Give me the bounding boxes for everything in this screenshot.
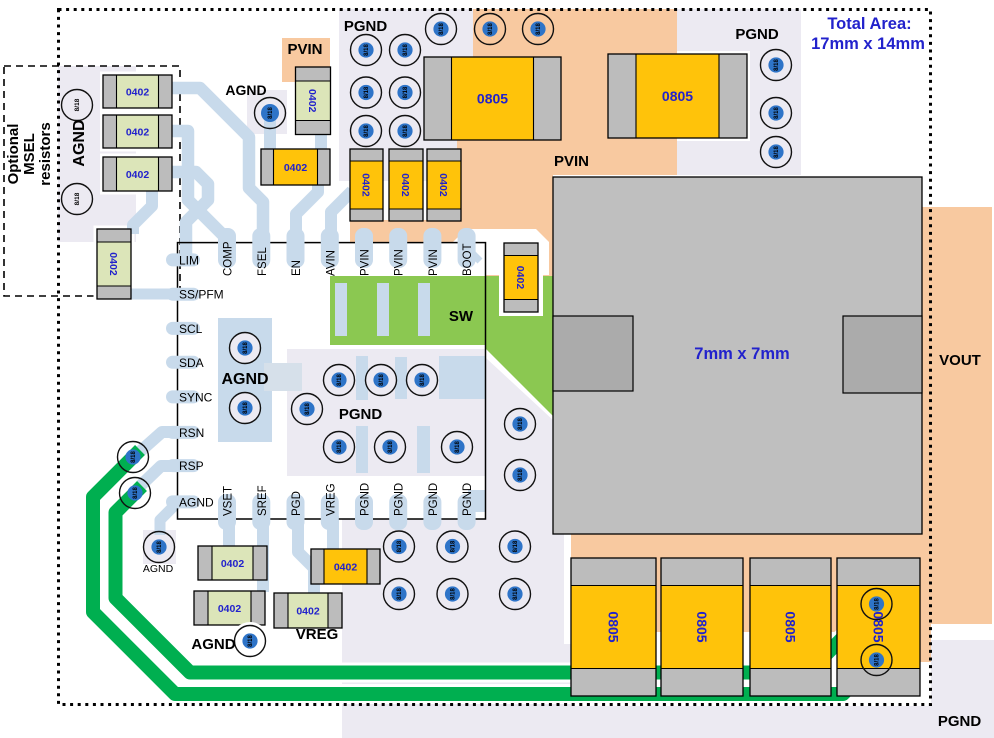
svg-text:8/18: 8/18 xyxy=(268,107,274,119)
svg-text:PVIN: PVIN xyxy=(287,41,322,58)
svg-text:8/18: 8/18 xyxy=(513,588,519,600)
svg-text:0402: 0402 xyxy=(126,86,150,98)
svg-text:0402: 0402 xyxy=(296,605,320,617)
svg-text:7mm x 7mm: 7mm x 7mm xyxy=(694,345,789,363)
svg-text:VREG: VREG xyxy=(325,483,337,516)
svg-text:8/18: 8/18 xyxy=(243,402,249,414)
svg-text:0805: 0805 xyxy=(477,91,508,107)
svg-text:SS/PFM: SS/PFM xyxy=(179,288,224,302)
svg-text:8/18: 8/18 xyxy=(513,540,519,552)
svg-text:8/18: 8/18 xyxy=(337,441,343,453)
svg-text:8/18: 8/18 xyxy=(379,374,385,386)
svg-text:AGND: AGND xyxy=(191,636,235,653)
svg-text:8/18: 8/18 xyxy=(518,469,524,481)
svg-text:0402: 0402 xyxy=(334,561,358,573)
svg-text:8/18: 8/18 xyxy=(455,441,461,453)
svg-text:PGND: PGND xyxy=(344,18,388,35)
svg-text:17mm x 14mm: 17mm x 14mm xyxy=(811,35,925,53)
svg-text:PVIN: PVIN xyxy=(394,249,406,276)
svg-text:8/18: 8/18 xyxy=(403,44,409,56)
svg-text:0402: 0402 xyxy=(399,173,411,197)
svg-text:PGND: PGND xyxy=(428,483,440,516)
svg-text:8/18: 8/18 xyxy=(305,403,311,415)
svg-text:8/18: 8/18 xyxy=(451,588,457,600)
svg-text:PGND: PGND xyxy=(462,483,474,516)
svg-text:0402: 0402 xyxy=(218,603,242,615)
svg-text:SW: SW xyxy=(449,308,474,325)
svg-text:8/18: 8/18 xyxy=(774,146,780,158)
svg-text:SREF: SREF xyxy=(257,485,269,516)
svg-text:8/18: 8/18 xyxy=(337,374,343,386)
svg-text:8/18: 8/18 xyxy=(388,441,394,453)
svg-text:MSEL: MSEL xyxy=(21,133,38,175)
svg-text:8/18: 8/18 xyxy=(133,487,139,499)
svg-text:VREG: VREG xyxy=(296,626,339,643)
svg-text:PVIN: PVIN xyxy=(554,153,589,170)
svg-text:0402: 0402 xyxy=(221,558,245,570)
svg-text:EN: EN xyxy=(291,260,303,276)
svg-text:8/18: 8/18 xyxy=(364,44,370,56)
svg-text:PGD: PGD xyxy=(291,491,303,516)
svg-text:PGND: PGND xyxy=(735,26,779,43)
svg-text:0402: 0402 xyxy=(437,173,449,197)
svg-text:0402: 0402 xyxy=(284,162,308,174)
svg-text:8/18: 8/18 xyxy=(875,598,881,610)
svg-text:8/18: 8/18 xyxy=(488,23,494,35)
svg-text:8/18: 8/18 xyxy=(397,540,403,552)
svg-text:PGND: PGND xyxy=(339,406,383,423)
svg-text:8/18: 8/18 xyxy=(439,23,445,35)
svg-text:FSEL: FSEL xyxy=(257,247,269,276)
svg-text:8/18: 8/18 xyxy=(157,541,163,553)
svg-text:0805: 0805 xyxy=(782,611,798,642)
svg-text:LIM: LIM xyxy=(179,253,199,267)
svg-text:8/18: 8/18 xyxy=(403,125,409,137)
svg-text:8/18: 8/18 xyxy=(131,451,137,463)
svg-text:8/18: 8/18 xyxy=(875,654,881,666)
svg-text:8/18: 8/18 xyxy=(536,23,542,35)
svg-text:0402: 0402 xyxy=(126,169,150,181)
svg-text:0805: 0805 xyxy=(870,611,886,642)
svg-text:PGND: PGND xyxy=(360,483,372,516)
svg-text:8/18: 8/18 xyxy=(403,86,409,98)
svg-text:8/18: 8/18 xyxy=(364,86,370,98)
svg-text:0805: 0805 xyxy=(694,611,710,642)
svg-text:resistors: resistors xyxy=(37,122,54,185)
svg-text:AGND: AGND xyxy=(225,82,266,98)
svg-text:8/18: 8/18 xyxy=(774,107,780,119)
svg-text:0402: 0402 xyxy=(360,173,372,197)
svg-text:BOOT: BOOT xyxy=(462,243,474,276)
svg-text:0805: 0805 xyxy=(662,88,693,104)
svg-text:AGND: AGND xyxy=(143,563,174,575)
svg-text:PGND: PGND xyxy=(394,483,406,516)
svg-text:COMP: COMP xyxy=(223,241,235,276)
svg-text:RSP: RSP xyxy=(179,459,204,473)
svg-text:8/18: 8/18 xyxy=(74,98,81,111)
svg-text:8/18: 8/18 xyxy=(248,635,254,647)
svg-text:AGND: AGND xyxy=(221,371,268,388)
svg-text:0402: 0402 xyxy=(514,266,526,290)
svg-text:8/18: 8/18 xyxy=(451,540,457,552)
svg-text:PGND: PGND xyxy=(938,713,982,730)
svg-text:8/18: 8/18 xyxy=(243,342,249,354)
svg-text:AGND: AGND xyxy=(179,495,214,509)
svg-text:AGND: AGND xyxy=(71,119,88,166)
svg-text:RSN: RSN xyxy=(179,426,204,440)
svg-text:VSET: VSET xyxy=(223,486,235,516)
svg-text:8/18: 8/18 xyxy=(518,418,524,430)
svg-text:8/18: 8/18 xyxy=(774,59,780,71)
svg-text:SDA: SDA xyxy=(179,356,204,370)
svg-text:0402: 0402 xyxy=(107,252,119,276)
svg-text:VOUT: VOUT xyxy=(939,352,981,369)
svg-text:8/18: 8/18 xyxy=(364,125,370,137)
svg-text:AVIN: AVIN xyxy=(325,250,337,276)
svg-text:PVIN: PVIN xyxy=(360,249,372,276)
svg-text:Optional: Optional xyxy=(5,124,22,185)
svg-text:8/18: 8/18 xyxy=(420,374,426,386)
svg-text:0402: 0402 xyxy=(306,89,318,113)
svg-text:SCL: SCL xyxy=(179,322,203,336)
svg-text:PVIN: PVIN xyxy=(428,249,440,276)
svg-text:SYNC: SYNC xyxy=(179,390,213,404)
svg-text:0402: 0402 xyxy=(126,126,150,138)
svg-text:Total Area:: Total Area: xyxy=(827,15,911,33)
svg-text:8/18: 8/18 xyxy=(397,588,403,600)
svg-text:8/18: 8/18 xyxy=(74,192,81,205)
svg-text:0805: 0805 xyxy=(605,611,621,642)
